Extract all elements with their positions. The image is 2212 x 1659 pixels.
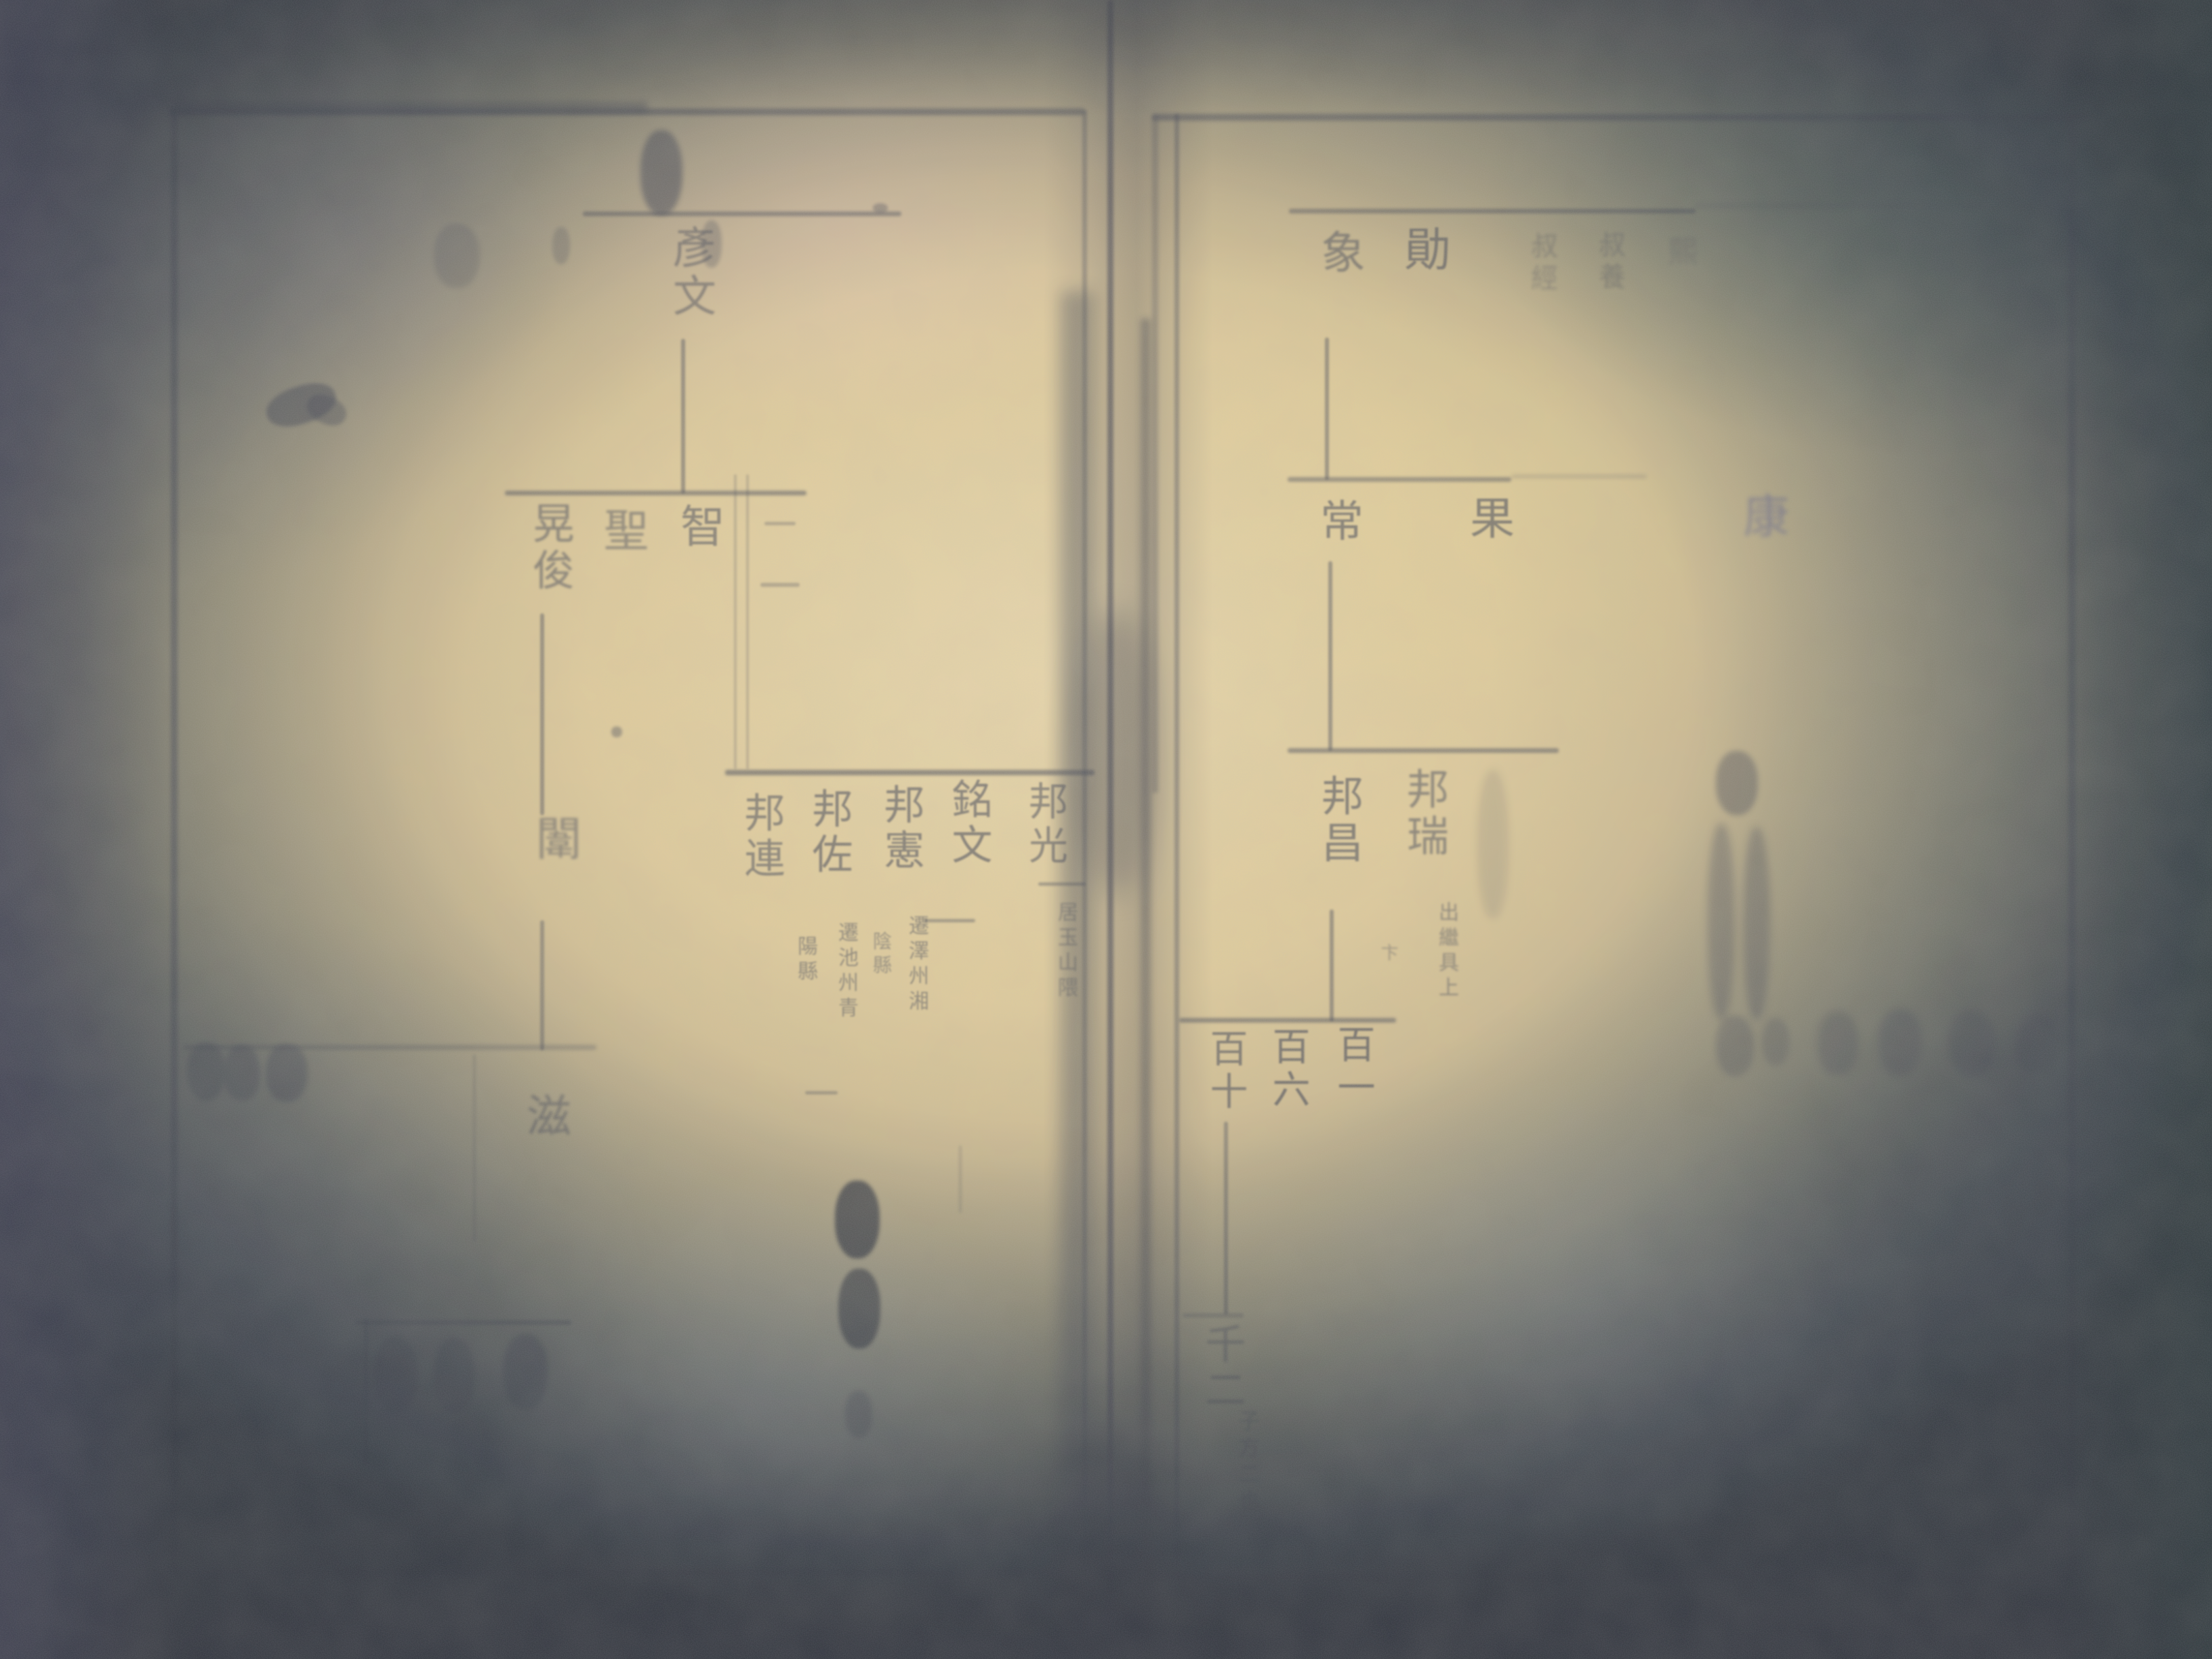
- warm-tone-overlay: [0, 0, 2212, 1659]
- photo-of-genealogy-book: 彥文晃俊聖智邦連邦佐邦憲銘文邦光陽縣遷池州青陰縣遷澤州湘居玉山隈闈滋象勛叔經叔養…: [0, 0, 2212, 1659]
